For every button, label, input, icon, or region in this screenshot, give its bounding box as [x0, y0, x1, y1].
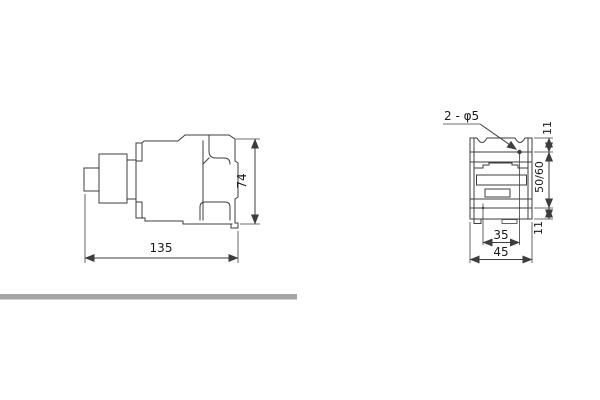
front-stepped-tab: [474, 163, 528, 168]
technical-drawing-page: 135 74 2 - φ5: [0, 0, 600, 400]
dim-45-label: 45: [493, 245, 508, 259]
dim-11-top-label: 11: [541, 121, 554, 135]
front-label-window: [477, 175, 527, 185]
holes-callout-label: 2 - φ5: [444, 109, 479, 123]
front-small-window: [485, 189, 510, 197]
side-inner-chamfer: [203, 158, 209, 164]
side-clip-top: [136, 143, 142, 161]
side-clip-bottom: [136, 202, 142, 218]
side-view-drawing: 135 74: [84, 135, 260, 263]
side-body-bottom-edge: [142, 218, 232, 224]
mounting-hole-top: [517, 150, 521, 154]
dim-35-label: 35: [493, 228, 508, 242]
side-terminal-block: [84, 168, 99, 191]
dim-50-60-label: 50/60: [533, 161, 546, 193]
side-inner-bottom-block: [200, 202, 230, 220]
side-inner-top-block: [209, 136, 230, 164]
drawing-canvas: 135 74 2 - φ5: [0, 0, 600, 400]
holes-callout-leader: [480, 124, 517, 150]
mounting-hole-bottom: [482, 207, 484, 209]
front-bottom-tab: [502, 220, 517, 224]
front-outline: [470, 138, 532, 219]
bottom-separator-bar: [0, 294, 297, 300]
front-bottom-notch: [474, 219, 481, 224]
side-coil-block: [99, 154, 127, 203]
front-view-drawing: 2 - φ5 11 50/60 11 35 45: [443, 109, 554, 263]
dim-135-label: 135: [150, 241, 173, 255]
side-body-top-edge: [142, 135, 235, 143]
dim-11-bottom-label: 11: [532, 221, 545, 235]
dim-74-label: 74: [235, 173, 249, 188]
